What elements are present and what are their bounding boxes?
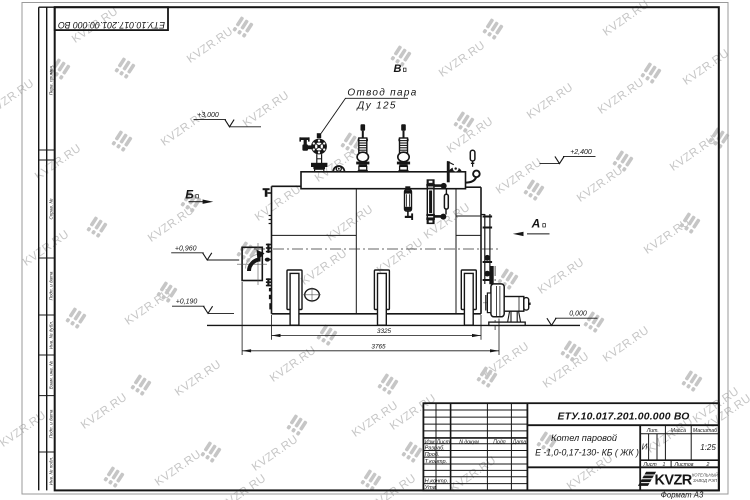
- svg-text:Инв. № подл.: Инв. № подл.: [49, 457, 54, 486]
- svg-text:ЕТУ.10.017.201.00.000 ВО: ЕТУ.10.017.201.00.000 ВО: [557, 411, 689, 422]
- svg-text:Н.контр.: Н.контр.: [425, 478, 449, 484]
- svg-text:3765: 3765: [371, 343, 386, 350]
- svg-text:Лит.: Лит.: [646, 428, 659, 434]
- svg-text:Отвод пара: Отвод пара: [347, 88, 417, 99]
- svg-text:Утв.: Утв.: [424, 485, 438, 491]
- svg-text:Подп. и дата: Подп. и дата: [49, 271, 54, 300]
- svg-text:0,000: 0,000: [569, 311, 587, 318]
- svg-text:ЕТУ.10.017.201.00.000 ВО: ЕТУ.10.017.201.00.000 ВО: [58, 20, 165, 30]
- svg-text:Перв. примен.: Перв. примен.: [49, 65, 54, 96]
- svg-text:Б: Б: [185, 188, 194, 202]
- svg-text:1:25: 1:25: [700, 443, 716, 452]
- svg-text:Инв. № дубл.: Инв. № дубл.: [49, 321, 54, 349]
- svg-text:Котел паровой: Котел паровой: [551, 433, 617, 443]
- svg-text:+2,400: +2,400: [570, 149, 592, 156]
- svg-text:Подп. и дата: Подп. и дата: [49, 409, 54, 438]
- svg-text:Масштаб: Масштаб: [693, 428, 718, 434]
- svg-text:Т.контр.: Т.контр.: [425, 459, 448, 465]
- svg-text:Дата: Дата: [512, 439, 527, 445]
- svg-text:KVZR: KVZR: [655, 473, 693, 489]
- svg-text:КОТЕЛЬНЫЙ: КОТЕЛЬНЫЙ: [692, 473, 718, 478]
- svg-text:Лист: Лист: [642, 462, 657, 468]
- svg-text:И: И: [642, 443, 648, 452]
- svg-text:+3,000: +3,000: [197, 112, 219, 119]
- svg-text:Е -1,0-0,17-130- КБ ( ЖК ): Е -1,0-0,17-130- КБ ( ЖК ): [535, 448, 639, 458]
- svg-text:Масса: Масса: [671, 428, 686, 434]
- svg-text:Проб.: Проб.: [425, 452, 440, 458]
- svg-text:2: 2: [706, 462, 710, 468]
- svg-text:Листов: Листов: [674, 462, 694, 468]
- svg-text:Разраб.: Разраб.: [425, 445, 445, 451]
- svg-text:В: В: [394, 63, 402, 75]
- svg-text:+0,960: +0,960: [175, 245, 197, 252]
- svg-text:Взам. инв. №: Взам. инв. №: [49, 361, 54, 389]
- svg-text:+0,190: +0,190: [176, 299, 198, 306]
- svg-text:ЗАВОД РЭП: ЗАВОД РЭП: [693, 478, 718, 483]
- svg-text:Подп: Подп: [493, 439, 506, 445]
- svg-text:1: 1: [663, 462, 666, 468]
- svg-text:Формат А3: Формат А3: [661, 491, 704, 500]
- svg-text:А: А: [531, 217, 541, 231]
- svg-text:Ду 125: Ду 125: [356, 101, 396, 112]
- svg-text:N докум: N докум: [459, 439, 479, 445]
- svg-text:3325: 3325: [377, 328, 392, 335]
- svg-text:Справ. №: Справ. №: [49, 199, 54, 220]
